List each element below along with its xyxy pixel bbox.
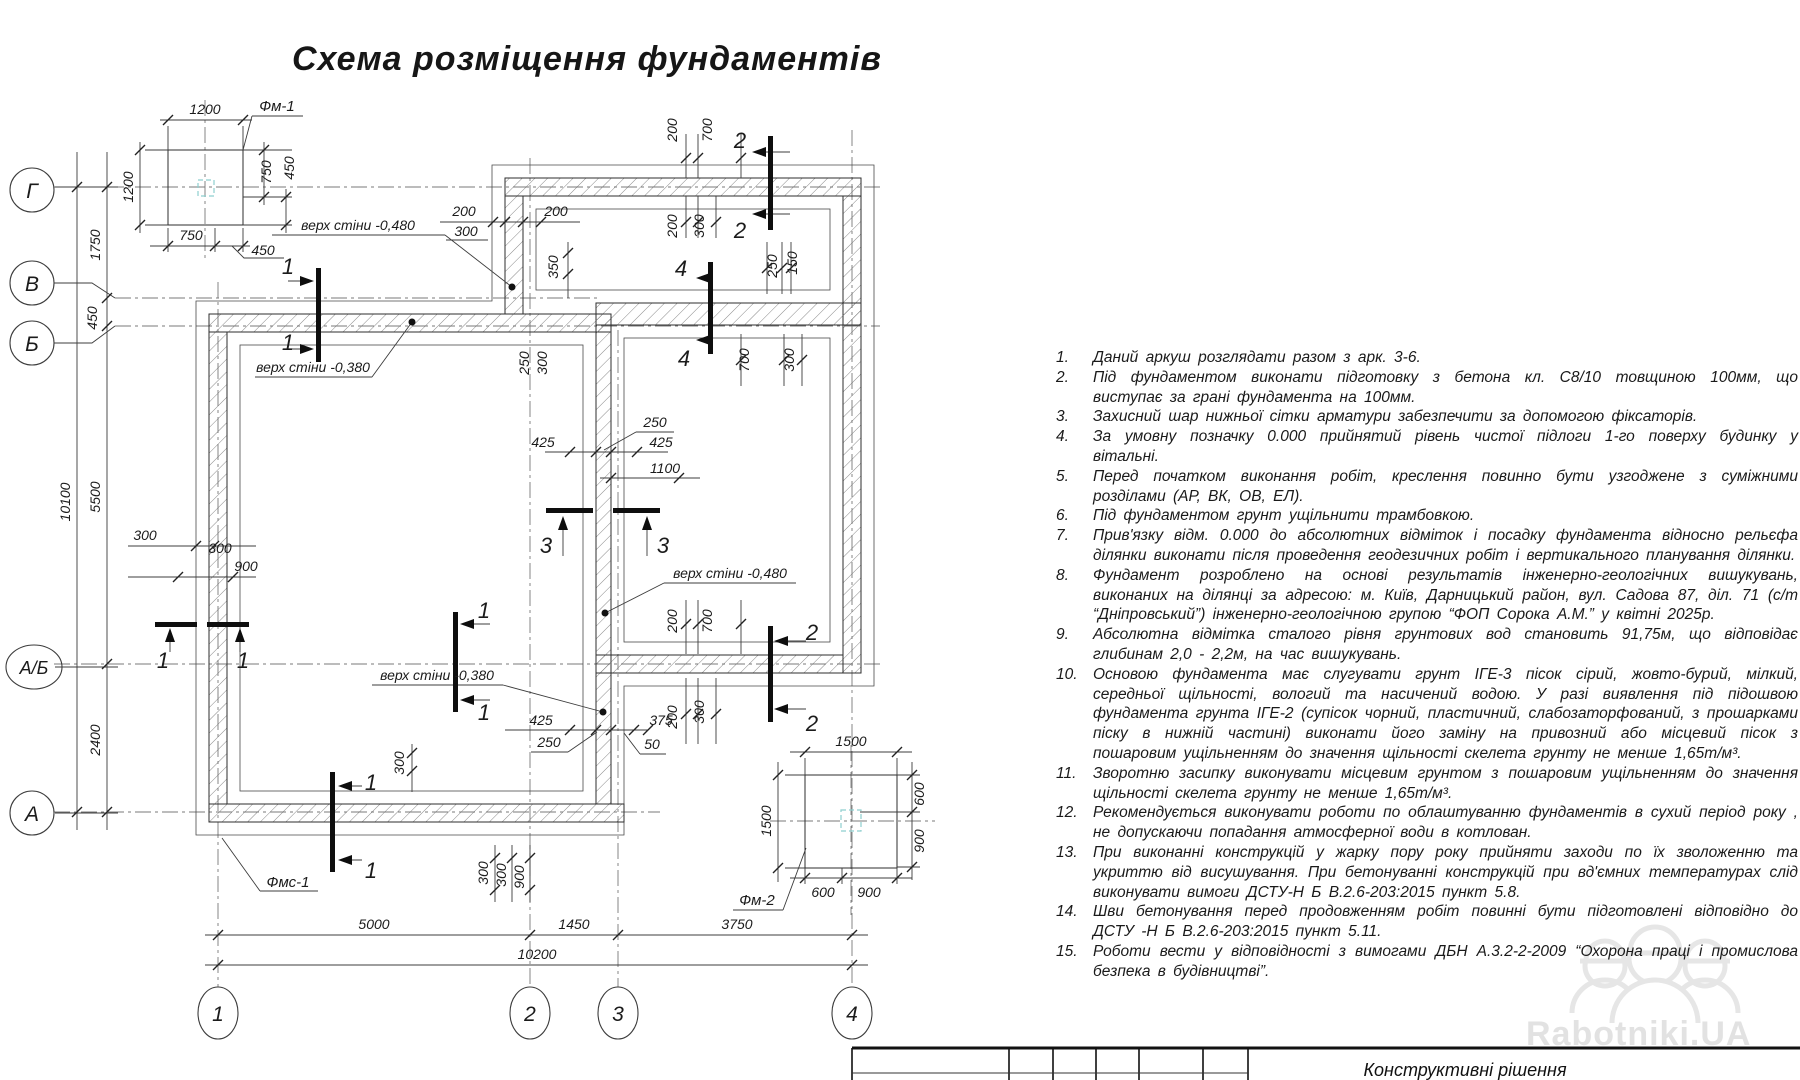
titleblock-title: Конструктивні рішення bbox=[1300, 1060, 1630, 1080]
title-block bbox=[0, 0, 1800, 1080]
drawing-sheet: Rabotniki.UA Схема розміщення фундаменті… bbox=[0, 0, 1800, 1080]
